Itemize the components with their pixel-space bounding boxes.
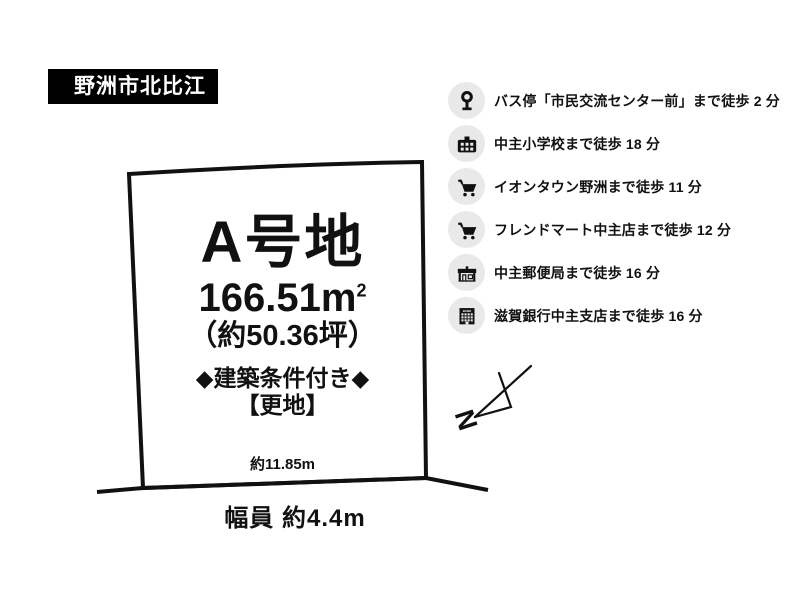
north-arrow-icon: N xyxy=(449,366,531,434)
amenity-text: イオンタウン野洲まで徒歩 11 分 xyxy=(494,177,702,197)
plot-condition: ◆建築条件付き◆ xyxy=(140,365,425,393)
plot-area-superscript: 2 xyxy=(356,281,366,301)
school-icon xyxy=(448,125,485,162)
plot-area-value: 166.51m xyxy=(199,276,357,320)
plot-name: A号地 xyxy=(140,213,425,274)
bank-icon: BANK xyxy=(448,297,485,334)
road-width-label: 幅員 約4.4m xyxy=(150,498,440,533)
amenity-item: 中主小学校まで徒歩 18 分 xyxy=(448,125,780,162)
north-label: N xyxy=(449,406,484,434)
plot-area: 166.51m2 xyxy=(140,276,425,320)
cart-icon xyxy=(448,168,485,205)
plot-area-tsubo: （約50.36坪） xyxy=(140,321,425,353)
plot-state: 【更地】 xyxy=(140,392,425,420)
amenity-item: BANK 滋賀銀行中主支店まで徒歩 16 分 xyxy=(448,297,780,334)
amenity-text: 滋賀銀行中主支店まで徒歩 16 分 xyxy=(494,306,703,326)
svg-text:BANK: BANK xyxy=(462,308,471,312)
amenity-text: バス停「市民交流センター前」まで徒歩 2 分 xyxy=(494,91,780,111)
amenity-text: 中主郵便局まで徒歩 16 分 xyxy=(494,263,660,283)
bus-stop-icon xyxy=(448,82,485,119)
land-plot-flyer: N 野洲市北比江 A号地 166.51m2 （約50.36坪） ◆建築条件付き◆… xyxy=(0,0,800,600)
location-label: 野洲市北比江 xyxy=(48,69,218,104)
amenities-list: バス停「市民交流センター前」まで徒歩 2 分 中主小学校まで徒歩 18 分 イオ… xyxy=(448,82,780,340)
cart-icon xyxy=(448,211,485,248)
amenity-item: フレンドマート中主店まで徒歩 12 分 xyxy=(448,211,780,248)
top-dimension-label: 約11.85m xyxy=(160,453,405,474)
post-office-icon xyxy=(448,254,485,291)
plot-info: A号地 166.51m2 （約50.36坪） ◆建築条件付き◆ 【更地】 xyxy=(140,213,425,420)
amenity-text: 中主小学校まで徒歩 18 分 xyxy=(494,134,660,154)
amenity-text: フレンドマート中主店まで徒歩 12 分 xyxy=(494,220,731,240)
amenity-item: イオンタウン野洲まで徒歩 11 分 xyxy=(448,168,780,205)
amenity-item: バス停「市民交流センター前」まで徒歩 2 分 xyxy=(448,82,780,119)
amenity-item: 中主郵便局まで徒歩 16 分 xyxy=(448,254,780,291)
